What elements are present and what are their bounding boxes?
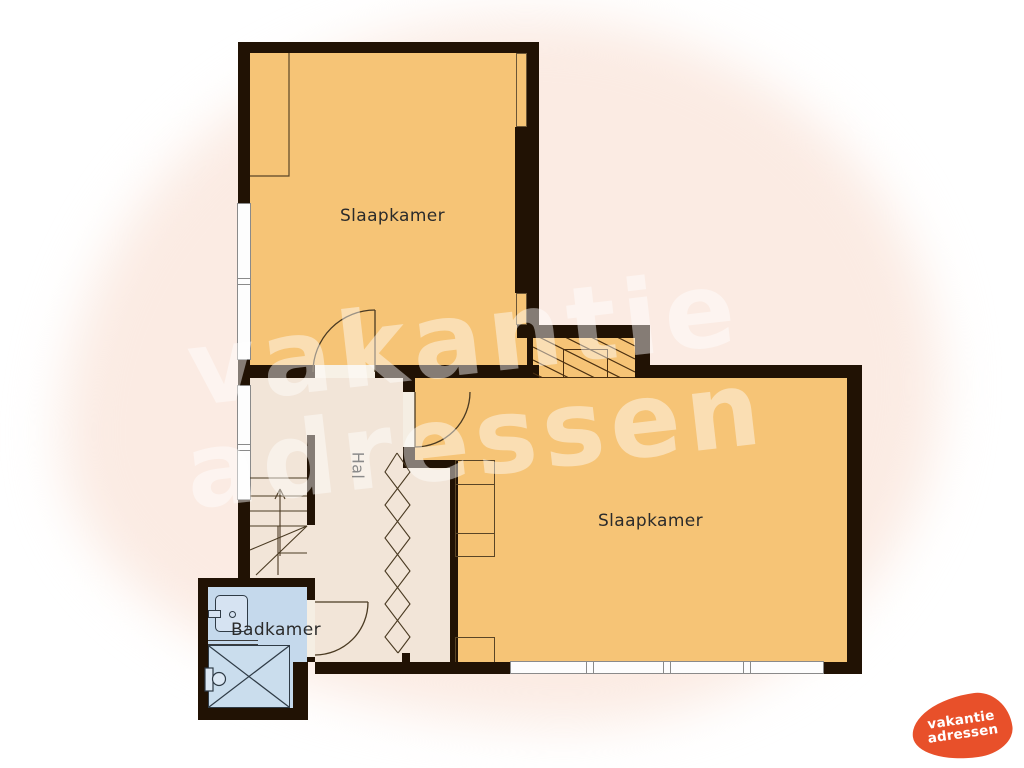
wall [402, 653, 410, 662]
closet [455, 637, 495, 662]
wall [198, 578, 208, 720]
wall [307, 587, 315, 600]
brand-logo: vakantie adressen [912, 695, 1012, 759]
logo-text: vakantie adressen [908, 688, 1016, 765]
floorplan-canvas: Slaapkamer Slaapkamer Hal Badkamer vakan… [0, 0, 1024, 768]
closet-divider [456, 533, 494, 534]
wall [293, 662, 308, 708]
drain [229, 611, 236, 618]
room-label-slaapkamer-top: Slaapkamer [300, 206, 485, 226]
wall [315, 662, 510, 674]
wall-chase [515, 127, 527, 293]
room-label-slaapkamer-right: Slaapkamer [558, 511, 743, 531]
wall [238, 42, 539, 53]
wall [198, 708, 308, 720]
tap [208, 610, 221, 618]
wall [238, 42, 250, 203]
window-mullion [238, 278, 250, 285]
wall-recess [516, 53, 527, 127]
wall [307, 657, 315, 662]
wall [198, 578, 315, 587]
room-label-badkamer: Badkamer [200, 620, 352, 640]
wall [847, 365, 862, 674]
window-mullion [663, 662, 671, 673]
wall [824, 662, 862, 674]
window [510, 661, 824, 674]
shower [208, 645, 290, 708]
window-mullion [586, 662, 594, 673]
window-mullion [743, 662, 751, 673]
